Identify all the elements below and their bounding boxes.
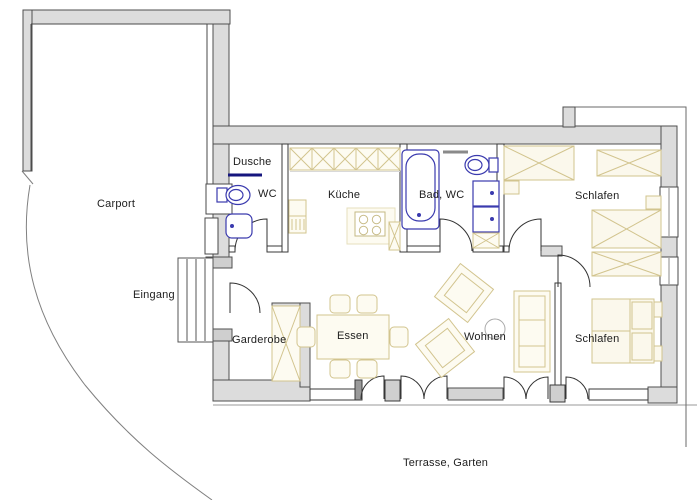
area-label-terrasse-garten: Terrasse, Garten [403, 457, 488, 469]
room-label-schlafen-bottom: Schlafen [575, 333, 619, 345]
bottom-wall-garderobe [213, 380, 310, 401]
dining-chair [357, 360, 377, 378]
armchair-2 [416, 319, 475, 378]
wall-wohnen-schlafen [555, 283, 561, 390]
bad-sink-2-tap [491, 218, 494, 221]
room-label-schlafen-top: Schlafen [575, 190, 619, 202]
carport-band-end-slant [22, 171, 33, 184]
door-schlafen-top [509, 219, 541, 251]
right-wall-mid [661, 236, 677, 258]
bad-toilet-cistern [489, 158, 498, 172]
room-label-garderobe: Garderobe [232, 334, 286, 346]
terrace-pillar-wohnen [550, 385, 565, 402]
right-wall-upper [661, 126, 677, 188]
bathtub-drain [418, 214, 421, 217]
terrace-door-schlafen [566, 377, 588, 399]
room-label-eingang: Eingang [133, 289, 175, 301]
terrace-window-slab [448, 388, 503, 400]
wc-toilet-bowl-inner [229, 190, 243, 201]
room-label-dusche: Dusche [233, 156, 272, 168]
wc-sink-tap [231, 225, 234, 228]
terrace-door-pair-essen-a [401, 376, 424, 399]
terrace-door-pair-wohnen-b [526, 377, 548, 399]
hall-wall-stub [541, 246, 562, 256]
nightstand [646, 196, 661, 209]
wc-sink [226, 214, 252, 238]
left-wall-upper [213, 24, 229, 184]
window-entry-side [205, 218, 218, 254]
bad-sink-1-tap [491, 192, 494, 195]
bottom-right-corner-wall [648, 387, 677, 403]
dining-chair [297, 327, 315, 347]
sofa-inner [519, 296, 545, 367]
armchair-1 [435, 264, 494, 323]
carport-top-band [23, 10, 230, 24]
bad-sink-1 [473, 181, 499, 206]
room-label-carport: Carport [97, 198, 135, 210]
floorplan-page: Carport Eingang Dusche WC Küche Bad, WC … [0, 0, 700, 500]
nightstand [504, 181, 519, 194]
terrace-door-pair-wohnen-a [504, 377, 526, 399]
bathtub-inner [406, 154, 435, 221]
pillow [632, 302, 652, 329]
nightstand [654, 302, 662, 317]
room-label-wc: WC [258, 188, 277, 200]
carport-structure [23, 10, 230, 184]
door-entry [230, 283, 260, 313]
dining-chair [390, 327, 408, 347]
pillow [632, 333, 652, 360]
wall-schlafen1-bottom [504, 246, 509, 252]
wall-wc-bottom-left [229, 246, 235, 252]
bad-toilet-bowl-inner [468, 160, 482, 171]
terrace-pillar-essen [385, 380, 400, 401]
dining-chair [357, 295, 377, 313]
door-bad [440, 219, 472, 251]
bad-cabinet [473, 233, 499, 248]
floorplan-drawing [0, 0, 700, 500]
right-wall-lower [661, 284, 677, 403]
entry-steps [178, 258, 213, 342]
dining-chair [330, 295, 350, 313]
room-label-wohnen: Wohnen [464, 331, 506, 343]
bad-sink-2 [473, 207, 499, 232]
door-schlafen-bottom [558, 255, 590, 287]
living-furniture [416, 264, 550, 378]
top-right-pillar [563, 107, 575, 127]
terrace-door-pair-essen-b [424, 376, 447, 399]
terrace-wall-right [589, 389, 648, 400]
nightstand [654, 346, 662, 361]
wall-wc-bottom-right [267, 246, 282, 252]
room-label-essen: Essen [337, 330, 369, 342]
top-wall [213, 126, 677, 144]
room-label-kueche: Küche [328, 189, 360, 201]
wall-bad-bottom-left [407, 246, 440, 252]
carport-inner-outline [31, 24, 207, 184]
terrace-wall-left [310, 389, 356, 400]
dining-chair [330, 360, 350, 378]
wall-dusche-kueche [282, 144, 288, 252]
terrace-door-single-left [361, 376, 384, 399]
room-label-bad-wc: Bad, WC [419, 189, 464, 201]
